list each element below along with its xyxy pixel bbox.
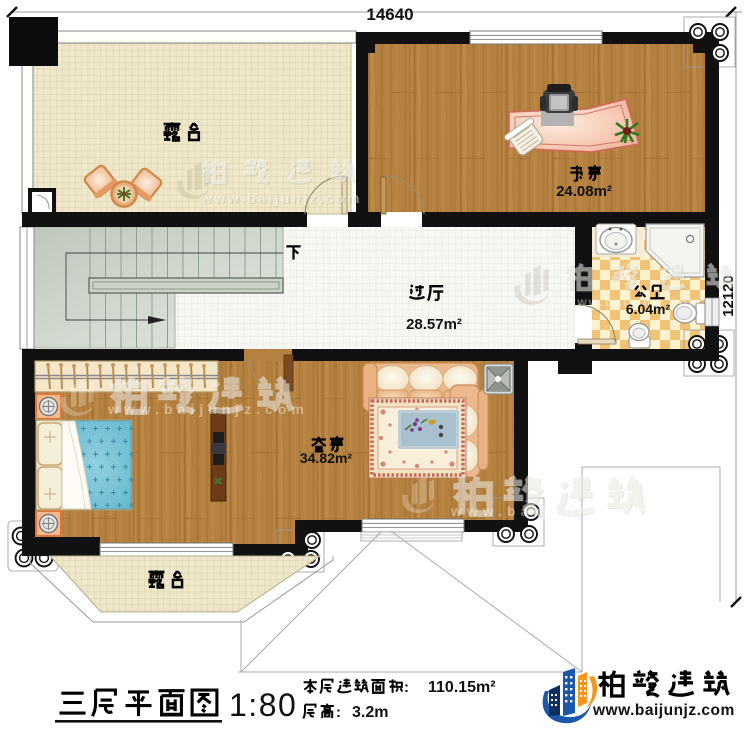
svg-text:www.baijunjz.com: www.baijunjz.com [592, 702, 735, 719]
svg-text:3.2m: 3.2m [352, 704, 388, 721]
svg-text::: : [404, 679, 409, 696]
svg-text:6.04m²: 6.04m² [626, 301, 671, 317]
svg-text::: : [336, 704, 341, 721]
svg-text:28.57m²: 28.57m² [406, 316, 462, 333]
svg-text:www.baijunjz.com: www.baijunjz.com [450, 503, 652, 519]
svg-text:14640: 14640 [366, 5, 413, 24]
svg-text:1:80: 1:80 [229, 687, 297, 723]
svg-text:www.baijunjz.com: www.baijunjz.com [107, 401, 309, 417]
svg-text:34.82m²: 34.82m² [300, 450, 352, 466]
svg-text:www.baijunjz.com: www.baijunjz.com [200, 190, 362, 206]
svg-text:24.08m²: 24.08m² [556, 183, 612, 200]
svg-text:110.15m²: 110.15m² [428, 679, 496, 696]
